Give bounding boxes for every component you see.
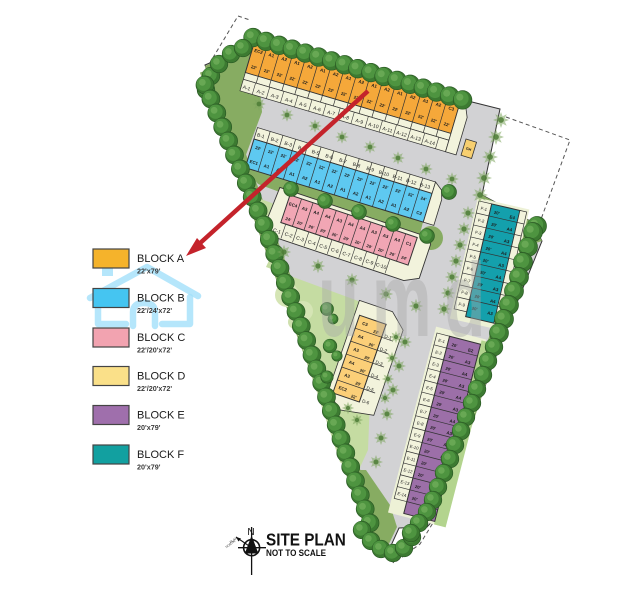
svg-text:20'x79': 20'x79' [137,423,161,432]
svg-text:BLOCK D: BLOCK D [137,371,185,383]
svg-text:20'x79': 20'x79' [137,463,161,472]
svg-text:NOT TO SCALE: NOT TO SCALE [266,548,326,559]
svg-text:22'x79': 22'x79' [137,267,161,276]
svg-text:N: N [247,527,254,538]
svg-text:BLOCK E: BLOCK E [137,410,185,422]
svg-text:BLOCK B: BLOCK B [137,293,185,305]
svg-text:umd: umd [318,241,498,359]
svg-text:22'/20'x72': 22'/20'x72' [137,384,172,393]
svg-text:22'/24'x72': 22'/24'x72' [137,306,172,315]
svg-text:22'/20'x72': 22'/20'x72' [137,346,172,355]
svg-text:BLOCK A: BLOCK A [137,253,185,265]
svg-text:BLOCK C: BLOCK C [137,332,185,344]
svg-text:BLOCK F: BLOCK F [137,449,184,461]
